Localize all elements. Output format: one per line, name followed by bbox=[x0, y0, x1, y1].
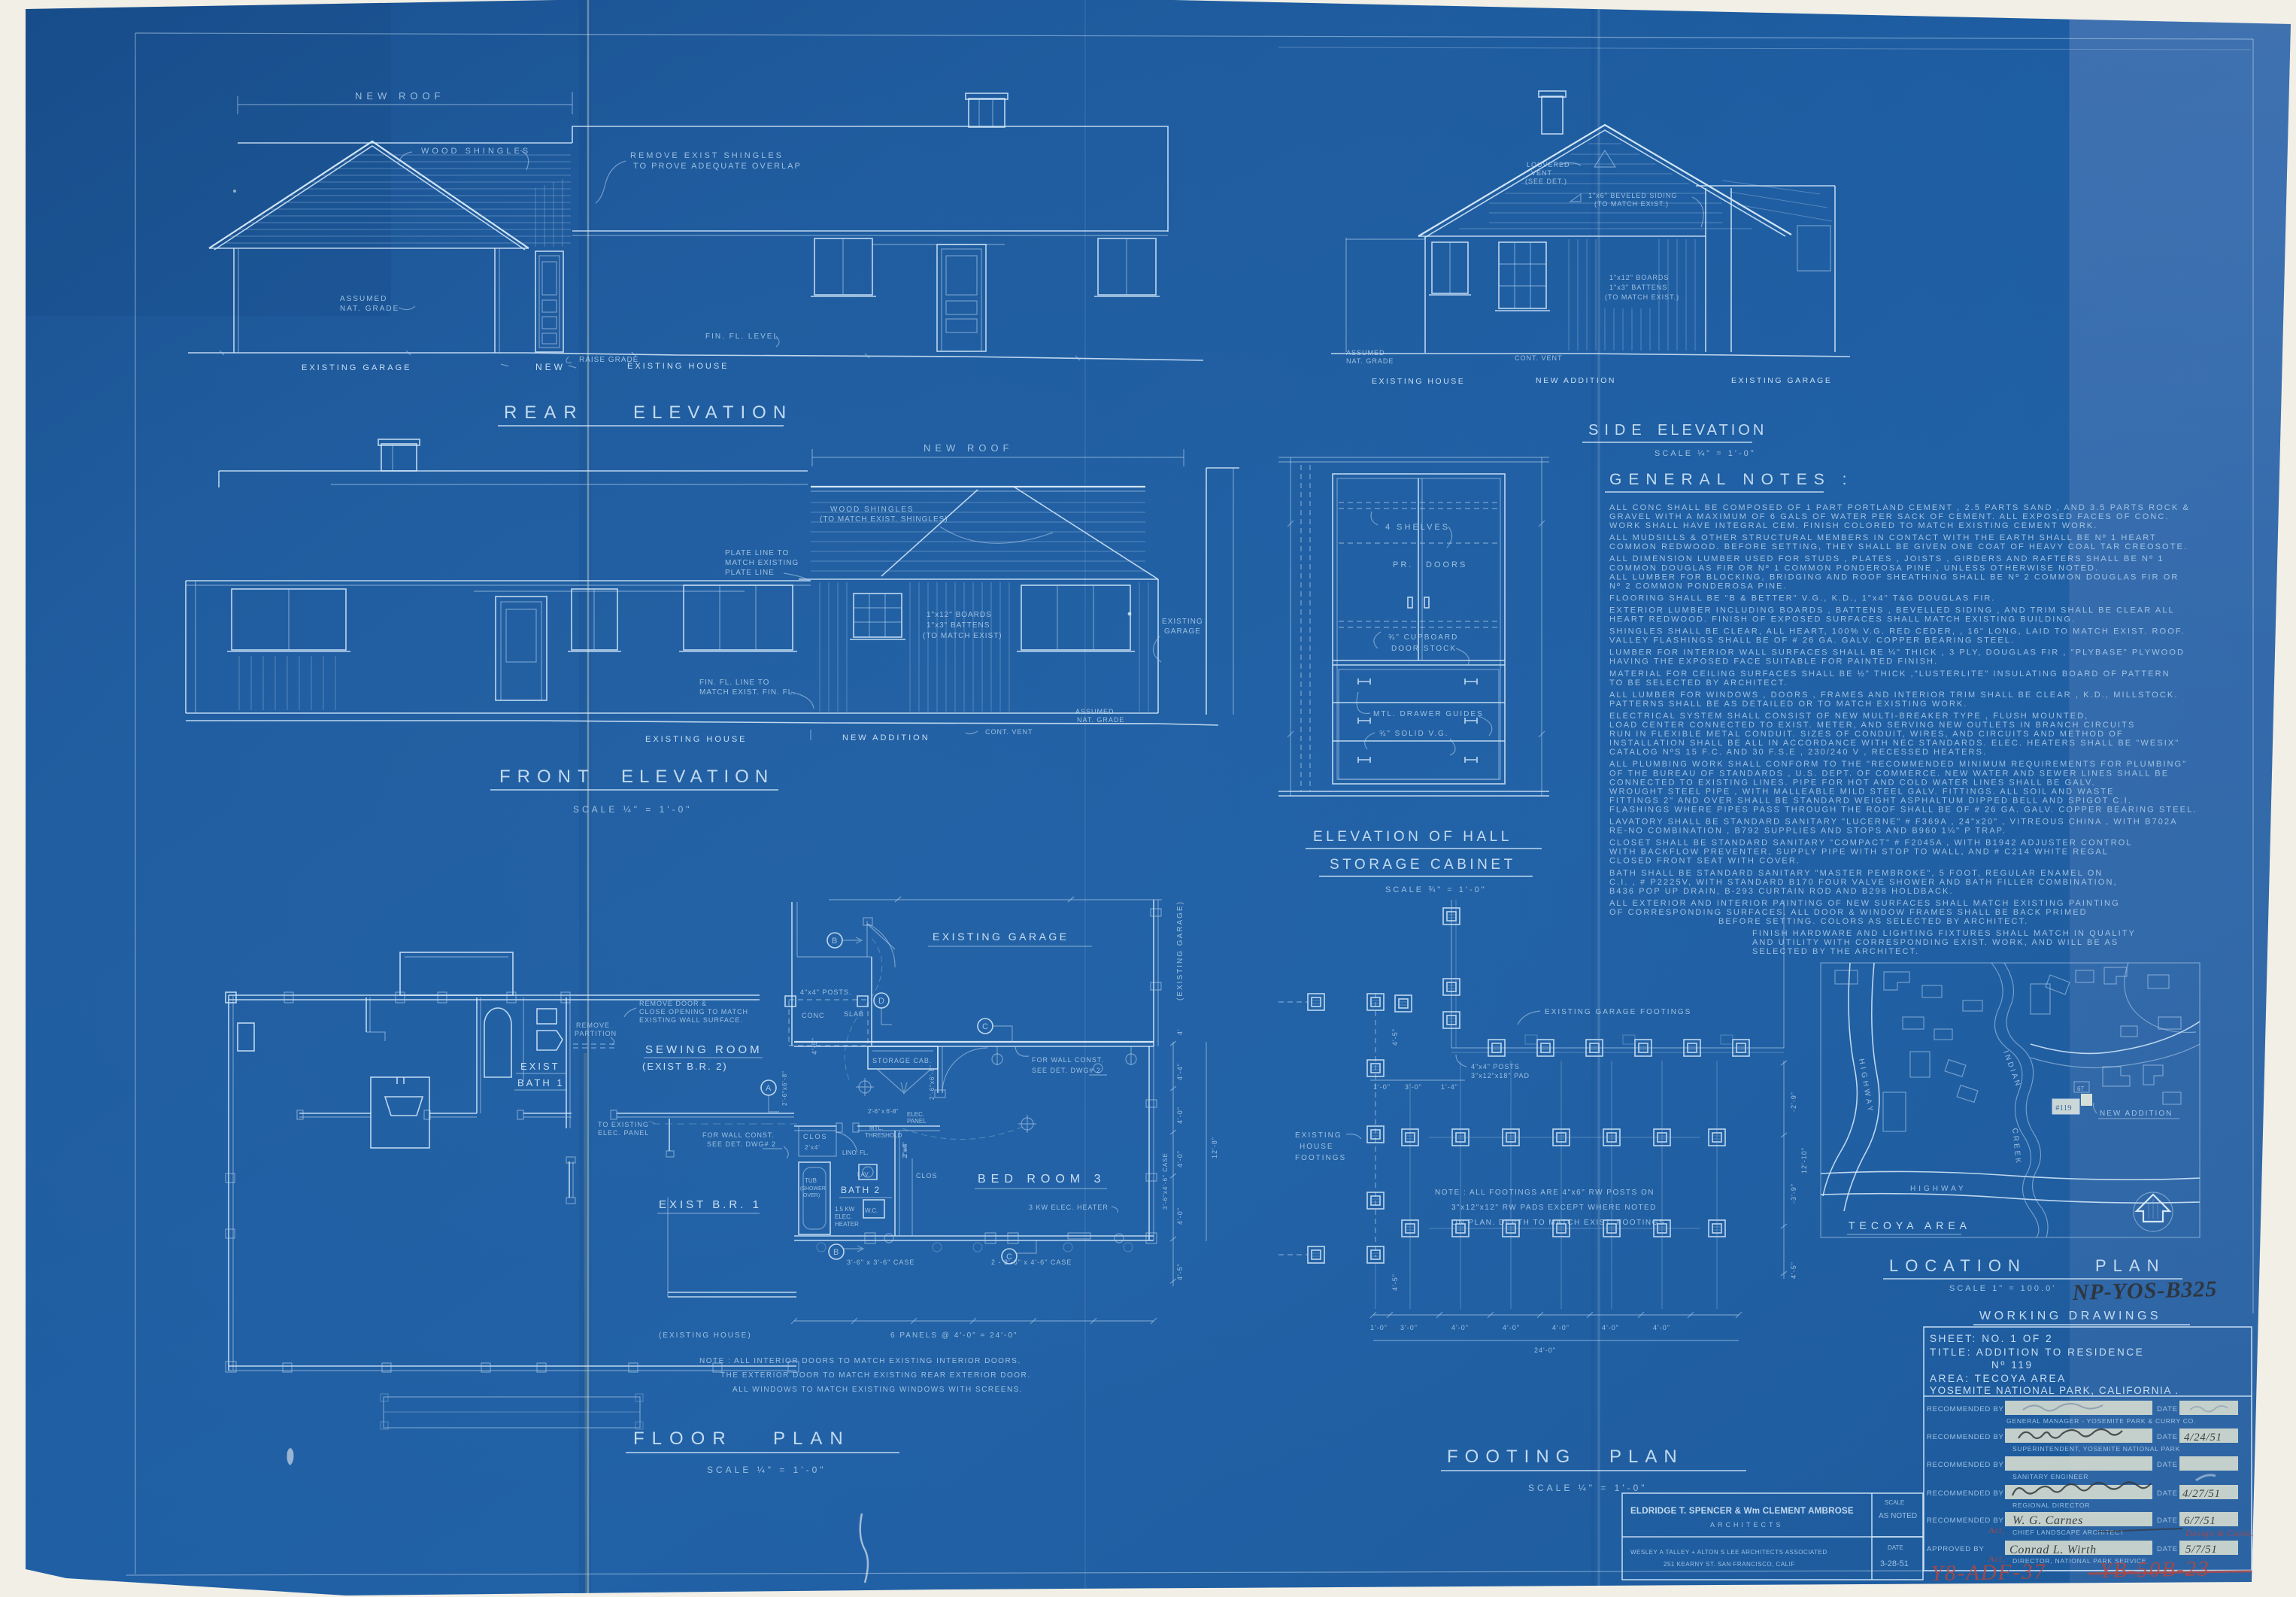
svg-text:PLAN: PLAN bbox=[2095, 1256, 2165, 1275]
svg-text:YOSEMITE NATIONAL PARK, CALI: YOSEMITE NATIONAL PARK, CALIFORNIA . bbox=[1930, 1385, 2179, 1396]
svg-text:EXTERIOR LUMBER INCLUDING BOAR: EXTERIOR LUMBER INCLUDING BOARDS , BATTE… bbox=[1609, 606, 2175, 615]
svg-text:4'-0": 4'-0" bbox=[1503, 1324, 1520, 1331]
svg-text:FOR WALL CONST.: FOR WALL CONST. bbox=[1032, 1056, 1104, 1064]
svg-text:3'-6"x4'-6" CASE: 3'-6"x4'-6" CASE bbox=[1162, 1152, 1169, 1210]
svg-text:ASSUMED: ASSUMED bbox=[340, 295, 387, 303]
svg-text:4'-0": 4'-0" bbox=[1602, 1324, 1619, 1331]
svg-text:SHEET: NO. 1 OF 2: SHEET: NO. 1 OF 2 bbox=[1930, 1333, 2053, 1344]
svg-text:CLOSED FRONT SEAT WITH COVER.: CLOSED FRONT SEAT WITH COVER. bbox=[1609, 857, 1800, 866]
svg-text:ALL CONC SHALL BE COMPOSED OF: ALL CONC SHALL BE COMPOSED OF 1 PART POR… bbox=[1609, 503, 2190, 512]
svg-text:SCALE ¼" = 1'-0": SCALE ¼" = 1'-0" bbox=[1655, 449, 1756, 458]
svg-text:SANITARY ENGINEER: SANITARY ENGINEER bbox=[2012, 1473, 2088, 1480]
svg-text:Act,: Act, bbox=[1988, 1525, 2005, 1535]
svg-text:THE EXTERIOR DOOR TO MATCH: THE EXTERIOR DOOR TO MATCH EXISTING REAR… bbox=[720, 1371, 1031, 1380]
svg-text:MATCH EXIST. FIN. FL.: MATCH EXIST. FIN. FL. bbox=[699, 688, 796, 697]
svg-text:BATH 2: BATH 2 bbox=[841, 1185, 881, 1195]
svg-text:EXISTING: EXISTING bbox=[1162, 618, 1203, 626]
svg-text:OVER): OVER) bbox=[803, 1193, 820, 1198]
svg-text:DATE: DATE bbox=[2157, 1545, 2178, 1553]
svg-text:ELEC.: ELEC. bbox=[835, 1213, 852, 1220]
svg-text:-2'-9": -2'-9" bbox=[1790, 1091, 1797, 1112]
svg-text:3'-0": 3'-0" bbox=[1400, 1324, 1418, 1331]
svg-text:BATH SHALL BE STANDARD SANITAR: BATH SHALL BE STANDARD SANITARY "MASTER … bbox=[1609, 869, 2103, 878]
svg-text:REMOVE DOOR &: REMOVE DOOR & bbox=[639, 1000, 707, 1007]
svg-text:DATE: DATE bbox=[2157, 1405, 2178, 1413]
svg-text:PLATE LINE TO: PLATE LINE TO bbox=[725, 549, 789, 557]
svg-text:HEATER: HEATER bbox=[835, 1221, 859, 1228]
svg-text:APPROVED BY: APPROVED BY bbox=[1927, 1545, 1984, 1553]
svg-text:RECOMMENDED BY: RECOMMENDED BY bbox=[1927, 1433, 2004, 1441]
svg-text:AREA: TECOYA AREA: AREA: TECOYA AREA bbox=[1930, 1373, 2067, 1384]
svg-text:LOCATION: LOCATION bbox=[1889, 1256, 2027, 1275]
svg-text:1"x12" BOARDS: 1"x12" BOARDS bbox=[927, 611, 992, 619]
svg-text:STORAGE CABINET: STORAGE CABINET bbox=[1330, 857, 1516, 873]
svg-text:INSTALLATION SHALL BE ALL IN A: INSTALLATION SHALL BE ALL IN ACCORDANCE … bbox=[1609, 739, 2179, 748]
svg-text:3"x12"x18" PAD: 3"x12"x18" PAD bbox=[1471, 1072, 1530, 1079]
svg-text:2 - 3'-6" x 4'-6" CASE: 2 - 3'-6" x 4'-6" CASE bbox=[991, 1258, 1072, 1266]
svg-text:RECOMMENDED BY: RECOMMENDED BY bbox=[1927, 1517, 2004, 1525]
svg-text:MTL. DRAWER GUIDES: MTL. DRAWER GUIDES bbox=[1373, 710, 1484, 718]
svg-text:4'-5": 4'-5" bbox=[1391, 1028, 1399, 1046]
svg-text:ASSUMED: ASSUMED bbox=[1346, 349, 1385, 357]
svg-text:RUN IN FLEXIBLE METAL CONDUIT.: RUN IN FLEXIBLE METAL CONDUIT. SIZES OF … bbox=[1609, 730, 2124, 739]
svg-text:4/24/51: 4/24/51 bbox=[2184, 1432, 2222, 1444]
svg-text:NEW ROOF: NEW ROOF bbox=[355, 90, 445, 102]
svg-text:YB-50B-23: YB-50B-23 bbox=[2100, 1556, 2210, 1583]
svg-text:DATE: DATE bbox=[2157, 1489, 2178, 1498]
svg-text:GRAVEL WITH A MAXIMUM OF 6 GAL: GRAVEL WITH A MAXIMUM OF 6 GALS OF WATER… bbox=[1609, 512, 2170, 521]
svg-text:CONC: CONC bbox=[802, 1012, 825, 1019]
svg-text:CONT. VENT: CONT. VENT bbox=[1515, 354, 1563, 362]
svg-text:ELECTRICAL SYSTEM SHALL CONSIS: ELECTRICAL SYSTEM SHALL CONSIST OF NEW M… bbox=[1609, 712, 2088, 721]
svg-text:NAT. GRADE: NAT. GRADE bbox=[340, 305, 399, 313]
svg-text:LINO. FL.: LINO. FL. bbox=[842, 1149, 869, 1156]
svg-text:CLOS: CLOS bbox=[916, 1172, 938, 1180]
svg-text:EXISTING GARAGE FOOTINGS: EXISTING GARAGE FOOTINGS bbox=[1545, 1008, 1691, 1016]
svg-text:FOR WALL CONST.: FOR WALL CONST. bbox=[702, 1131, 775, 1139]
svg-text:1"x3" BATTENS: 1"x3" BATTENS bbox=[927, 621, 990, 630]
svg-text:TUB: TUB bbox=[805, 1177, 817, 1184]
svg-text:¾" SOLID V.G.: ¾" SOLID V.G. bbox=[1379, 730, 1449, 738]
svg-text:PR.: PR. bbox=[1393, 560, 1413, 569]
svg-text:CHIEF LANDSCAPE ARCHITECT: CHIEF LANDSCAPE ARCHITECT bbox=[2012, 1529, 2125, 1536]
svg-text:Design & Const.: Design & Const. bbox=[2185, 1528, 2254, 1538]
svg-text:ALL MUDSILLS & OTHER STRUCTURA: ALL MUDSILLS & OTHER STRUCTURAL MEMBERS … bbox=[1609, 533, 2157, 542]
svg-text:(SHOWER: (SHOWER bbox=[800, 1186, 826, 1192]
svg-text:SHINGLES SHALL BE CLEAR, ALL H: SHINGLES SHALL BE CLEAR, ALL HEART, 100%… bbox=[1609, 627, 2185, 636]
svg-text:¾" CUPBOARD: ¾" CUPBOARD bbox=[1388, 633, 1458, 642]
svg-text:CONT. VENT: CONT. VENT bbox=[985, 728, 1033, 736]
svg-text:SELECTED BY THE ARCHITECT.: SELECTED BY THE ARCHITECT. bbox=[1752, 947, 1919, 956]
svg-text:EXISTING HOUSE: EXISTING HOUSE bbox=[627, 362, 729, 371]
svg-text:LOUVERED: LOUVERED bbox=[1527, 161, 1570, 169]
svg-text:ON PLAN. DEPTH TO MATCH EX: ON PLAN. DEPTH TO MATCH EXIST. FOOTINGS. bbox=[1451, 1219, 1668, 1227]
svg-text:4'-0": 4'-0" bbox=[1451, 1324, 1469, 1331]
svg-text:W.C.: W.C. bbox=[865, 1207, 878, 1214]
svg-text:FOOTING: FOOTING bbox=[1447, 1447, 1576, 1467]
svg-text:(EXISTING HOUSE): (EXISTING HOUSE) bbox=[659, 1331, 752, 1340]
svg-text:EXISTING GARAGE: EXISTING GARAGE bbox=[1731, 376, 1832, 385]
svg-text:PLATE LINE: PLATE LINE bbox=[725, 569, 775, 577]
svg-text:DATE: DATE bbox=[2157, 1517, 2178, 1525]
svg-text:CLOS: CLOS bbox=[803, 1133, 828, 1140]
svg-text:NAT. GRADE: NAT. GRADE bbox=[1077, 716, 1124, 724]
svg-text:3-28-51: 3-28-51 bbox=[1880, 1559, 1909, 1568]
svg-text:ELEVATION: ELEVATION bbox=[633, 402, 793, 423]
svg-text:1"x3" BATTENS: 1"x3" BATTENS bbox=[1609, 284, 1667, 291]
svg-text:ALL DIMENSION LUMBER USED FOR: ALL DIMENSION LUMBER USED FOR STUDS , PL… bbox=[1609, 554, 2164, 563]
svg-text:BATH 1: BATH 1 bbox=[517, 1077, 565, 1088]
svg-text:ALL PLUMBING WORK SHALL CONFOR: ALL PLUMBING WORK SHALL CONFORM TO THE "… bbox=[1609, 760, 2187, 769]
svg-text:RECOMMENDED BY: RECOMMENDED BY bbox=[1927, 1489, 2004, 1498]
svg-text:DOORS: DOORS bbox=[1426, 560, 1467, 569]
svg-text:WESLEY A TALLEY + A: WESLEY A TALLEY + ALTON S LEE ARCHITECTS… bbox=[1630, 1549, 1827, 1556]
svg-text:NP-YOS-B325: NP-YOS-B325 bbox=[2071, 1277, 2217, 1305]
svg-text:B: B bbox=[832, 937, 837, 946]
svg-text:2'x4': 2'x4' bbox=[805, 1144, 820, 1151]
svg-text:SIDE: SIDE bbox=[1588, 422, 1648, 439]
svg-text:VALLEY FLASHINGS SHALL BE OF #: VALLEY FLASHINGS SHALL BE OF # 26 GA. GA… bbox=[1609, 636, 2015, 645]
svg-text:NEW ADDITION: NEW ADDITION bbox=[2100, 1110, 2173, 1118]
svg-text:12'-10": 12'-10" bbox=[1800, 1147, 1808, 1173]
svg-text:1.5 KW: 1.5 KW bbox=[835, 1206, 855, 1213]
svg-text:2'x4': 2'x4' bbox=[902, 1143, 908, 1158]
svg-text:C: C bbox=[982, 1022, 988, 1031]
svg-text:EXIST B.R. 1: EXIST B.R. 1 bbox=[659, 1198, 762, 1211]
svg-text:1"x12" BOARDS: 1"x12" BOARDS bbox=[1609, 274, 1669, 281]
svg-text:SCALE ¼" = 1'-0": SCALE ¼" = 1'-0" bbox=[573, 804, 693, 815]
svg-text:(TO MATCH EXIST. SHINGLES): (TO MATCH EXIST. SHINGLES) bbox=[820, 515, 948, 524]
svg-text:THRESHOLD: THRESHOLD bbox=[865, 1132, 902, 1139]
svg-text:1'-4": 1'-4" bbox=[1441, 1083, 1458, 1091]
svg-text:4'-5": 4'-5" bbox=[1790, 1262, 1797, 1279]
svg-text:REGIONAL DIRECTOR: REGIONAL DIRECTOR bbox=[2012, 1501, 2090, 1509]
svg-text:4'-4": 4'-4" bbox=[1176, 1063, 1184, 1080]
svg-text:(TO MATCH EXIST.): (TO MATCH EXIST.) bbox=[1594, 200, 1669, 208]
svg-text:NOTE : ALL INTERIOR DOORS: NOTE : ALL INTERIOR DOORS TO MATCH EXIST… bbox=[699, 1357, 1021, 1365]
svg-text:3'-0": 3'-0" bbox=[1405, 1083, 1422, 1091]
svg-text:LOAD CENTER CONNECTED TO EXIST: LOAD CENTER CONNECTED TO EXIST. METER, A… bbox=[1609, 721, 2135, 730]
svg-text:REMOVE: REMOVE bbox=[576, 1022, 610, 1029]
svg-text:DATE: DATE bbox=[1888, 1544, 1903, 1551]
svg-text:LAV: LAV bbox=[857, 1171, 869, 1178]
svg-text:FIN. FL. LEVEL: FIN. FL. LEVEL bbox=[705, 332, 779, 341]
svg-text:(SEE DET.): (SEE DET.) bbox=[1525, 178, 1567, 185]
svg-text:EXISTING GARAGE: EXISTING GARAGE bbox=[302, 363, 411, 372]
svg-text:Nº 119: Nº 119 bbox=[1991, 1359, 2034, 1371]
svg-text:RECOMMENDED BY: RECOMMENDED BY bbox=[1927, 1405, 2004, 1413]
svg-text:4'-0": 4'-0" bbox=[1176, 1207, 1184, 1225]
svg-text:FLOOR: FLOOR bbox=[633, 1428, 733, 1449]
svg-text:HIGHWAY: HIGHWAY bbox=[1910, 1185, 1967, 1193]
svg-text:(EXIST B.R. 2): (EXIST B.R. 2) bbox=[642, 1061, 728, 1072]
svg-text:COMMON DOUGLAS FIR OR Nº 1 COM: COMMON DOUGLAS FIR OR Nº 1 COMMON PONDER… bbox=[1609, 563, 2099, 572]
svg-text:REMOVE EXIST SHINGLES: REMOVE EXIST SHINGLES bbox=[630, 151, 784, 160]
svg-text:TO PROVE ADEQUATE OVERLAP: TO PROVE ADEQUATE OVERLAP bbox=[633, 162, 802, 171]
svg-text:GARAGE: GARAGE bbox=[1164, 627, 1201, 636]
svg-text:DATE: DATE bbox=[2157, 1433, 2178, 1441]
svg-text:TECOYA AREA: TECOYA AREA bbox=[1849, 1219, 1971, 1231]
svg-text:ELEVATION: ELEVATION bbox=[1658, 422, 1767, 439]
svg-text:HAVING THE EXPOSED FACE SUITAB: HAVING THE EXPOSED FACE SUITABLE FOR PAI… bbox=[1609, 657, 1938, 666]
svg-text:CONNECTED TO EXISTING LINES. P: CONNECTED TO EXISTING LINES. PIPE FOR HO… bbox=[1609, 778, 2096, 787]
svg-text:4'-5": 4'-5" bbox=[1176, 1263, 1184, 1280]
svg-text:FLOORING SHALL BE "B & BETTER": FLOORING SHALL BE "B & BETTER" V.G., K.D… bbox=[1609, 594, 1996, 603]
svg-text:HOUSE: HOUSE bbox=[1300, 1143, 1334, 1151]
svg-text:FIN. FL. LINE TO: FIN. FL. LINE TO bbox=[699, 679, 769, 687]
svg-text:W. G. Carnes: W. G. Carnes bbox=[2012, 1514, 2083, 1527]
svg-text:4'-0": 4'-0" bbox=[1552, 1324, 1570, 1331]
svg-text:1'-0": 1'-0" bbox=[1370, 1324, 1388, 1331]
svg-text:PLAN: PLAN bbox=[773, 1428, 851, 1449]
svg-text:4"x4" POSTS.: 4"x4" POSTS. bbox=[800, 988, 851, 996]
svg-text:VENT: VENT bbox=[1531, 169, 1552, 177]
svg-text:OF CORRESPONDING SURFACES. ALL: OF CORRESPONDING SURFACES. ALL DOOR & WI… bbox=[1609, 908, 2088, 917]
svg-text:D: D bbox=[878, 997, 884, 1006]
svg-text:4'-0": 4'-0" bbox=[1653, 1324, 1670, 1331]
svg-text:ALL LUMBER FOR WINDOWS , DOORS: ALL LUMBER FOR WINDOWS , DOORS , FRAMES … bbox=[1609, 691, 2178, 700]
svg-text:251 KEARNY ST. SAN FRANCIS: 251 KEARNY ST. SAN FRANCISCO, CALIF bbox=[1664, 1561, 1795, 1568]
svg-text:Conrad L. Wirth: Conrad L. Wirth bbox=[2009, 1544, 2097, 1556]
svg-text:Y8-ADF-37: Y8-ADF-37 bbox=[1931, 1559, 2047, 1586]
svg-text:SCALE ¼" = 1'-0": SCALE ¼" = 1'-0" bbox=[707, 1465, 826, 1475]
svg-text:67: 67 bbox=[2077, 1085, 2084, 1092]
svg-text:ELEVATION: ELEVATION bbox=[621, 767, 774, 787]
svg-text:GENERAL MANAGER - YOSEMITE P: GENERAL MANAGER - YOSEMITE PARK & CURRY … bbox=[2006, 1417, 2196, 1425]
svg-text:4"x4" POSTS: 4"x4" POSTS bbox=[1471, 1063, 1520, 1070]
svg-text:TO BE SELECTED BY ARCHITECT.: TO BE SELECTED BY ARCHITECT. bbox=[1609, 679, 1788, 688]
svg-text:SCALE 1" = 100.0': SCALE 1" = 100.0' bbox=[1949, 1284, 2056, 1293]
svg-text:4': 4' bbox=[1176, 1028, 1184, 1035]
svg-text:NAT. GRADE: NAT. GRADE bbox=[1346, 357, 1394, 365]
svg-text:1"x6" BEVELED SIDING: 1"x6" BEVELED SIDING bbox=[1588, 192, 1677, 199]
svg-text:RECOMMENDED BY: RECOMMENDED BY bbox=[1927, 1461, 2004, 1469]
svg-text:3 KW ELEC. HEATER: 3 KW ELEC. HEATER bbox=[1029, 1204, 1109, 1211]
svg-text:4 SHELVES: 4 SHELVES bbox=[1385, 523, 1450, 532]
svg-text:WORK SHALL HAVE INTEGRAL CEM.: WORK SHALL HAVE INTEGRAL CEM. FINISH COL… bbox=[1609, 521, 2098, 530]
svg-text:C.I. , # P2225V, WITH STANDARD: C.I. , # P2225V, WITH STANDARD B170 FOUR… bbox=[1609, 878, 2118, 887]
svg-text:5/7/51: 5/7/51 bbox=[2185, 1544, 2218, 1556]
svg-text:COMMON REDWOOD. BEFORE SETTING: COMMON REDWOOD. BEFORE SETTING, THEY SHA… bbox=[1609, 542, 2188, 551]
svg-text:EXISTING WALL SURFACE.: EXISTING WALL SURFACE. bbox=[639, 1016, 743, 1024]
svg-text:WORKING DRAWINGS: WORKING DRAWINGS bbox=[1979, 1310, 2161, 1322]
svg-text:2'-6"x6'-8": 2'-6"x6'-8" bbox=[929, 1064, 936, 1100]
svg-text:BED ROOM 3: BED ROOM 3 bbox=[978, 1173, 1106, 1186]
svg-text:(EXISTING GARAGE): (EXISTING GARAGE) bbox=[1176, 900, 1184, 1000]
svg-text:6 PANELS @ 4'-0" = 24': 6 PANELS @ 4'-0" = 24'-0" bbox=[890, 1331, 1018, 1340]
svg-text:NEW: NEW bbox=[535, 362, 566, 372]
svg-text:HEART REDWOOD. FINISH OF EXPOS: HEART REDWOOD. FINISH OF EXPOSED SURFACE… bbox=[1609, 615, 2076, 624]
svg-text:FITTINGS 2" AND OVER SHALL BE: FITTINGS 2" AND OVER SHALL BE STANDARD W… bbox=[1609, 796, 2132, 805]
svg-text:NOTE : ALL FOOTINGS ARE 4"x: NOTE : ALL FOOTINGS ARE 4"x6" RW POSTS O… bbox=[1435, 1189, 1655, 1197]
svg-text:GENERAL NOTES :: GENERAL NOTES : bbox=[1609, 471, 1853, 488]
svg-text:12'-8": 12'-8" bbox=[1211, 1137, 1218, 1158]
svg-text:4/27/51: 4/27/51 bbox=[2182, 1488, 2221, 1500]
svg-text:FOOTINGS: FOOTINGS bbox=[1295, 1154, 1346, 1162]
svg-text:NEW ROOF: NEW ROOF bbox=[924, 442, 1014, 454]
svg-text:EXISTING HOUSE: EXISTING HOUSE bbox=[1372, 377, 1465, 386]
svg-text:MATERIAL FOR CEILING SURFACES: MATERIAL FOR CEILING SURFACES SHALL BE ½… bbox=[1609, 669, 2170, 679]
svg-text:1'-0": 1'-0" bbox=[1373, 1083, 1391, 1091]
svg-text:3'-6" x 3'-6" CASE: 3'-6" x 3'-6" CASE bbox=[847, 1258, 914, 1266]
svg-text:ASSUMED: ASSUMED bbox=[1075, 708, 1115, 715]
svg-text:-3'-9": -3'-9" bbox=[1790, 1183, 1797, 1204]
svg-text:OF THE BUREAU OF STANDARDS , U: OF THE BUREAU OF STANDARDS , U.S. DEPT. … bbox=[1609, 769, 2169, 778]
svg-text:NEW ADDITION: NEW ADDITION bbox=[1536, 376, 1616, 385]
svg-text:EXISTING: EXISTING bbox=[1295, 1131, 1342, 1140]
svg-text:ALL LUMBER FOR BLOCKING, BRIDG: ALL LUMBER FOR BLOCKING, BRIDGING AND RO… bbox=[1609, 572, 2179, 581]
svg-text:CLOSET SHALL BE STANDARD SANIT: CLOSET SHALL BE STANDARD SANITARY "COMPA… bbox=[1609, 839, 2133, 848]
svg-text:WOOD SHINGLES: WOOD SHINGLES bbox=[421, 147, 531, 156]
svg-text:SCALE: SCALE bbox=[1885, 1499, 1904, 1506]
svg-text:4'-0": 4'-0" bbox=[1176, 1107, 1184, 1124]
svg-text:(TO MATCH EXIST): (TO MATCH EXIST) bbox=[923, 632, 1002, 640]
svg-text:ELDRIDGE T. SPENCER & Wm CLEME: ELDRIDGE T. SPENCER & Wm CLEMENT AMBROSE bbox=[1630, 1506, 1854, 1516]
svg-text:CLOSE OPENING TO MATCH: CLOSE OPENING TO MATCH bbox=[639, 1008, 748, 1016]
svg-text:FRONT: FRONT bbox=[499, 767, 596, 787]
svg-text:#119: #119 bbox=[2055, 1104, 2072, 1113]
svg-text:MATCH EXISTING: MATCH EXISTING bbox=[725, 559, 799, 567]
svg-text:PATTERNS SHALL BE AS DETAILED: PATTERNS SHALL BE AS DETAILED OR TO MATC… bbox=[1609, 700, 1968, 709]
svg-text:REAR: REAR bbox=[504, 402, 584, 423]
svg-text:PARTITION: PARTITION bbox=[575, 1030, 617, 1037]
svg-text:EXISTING HOUSE: EXISTING HOUSE bbox=[645, 735, 748, 744]
svg-text:SCALE ¾" = 1'-0": SCALE ¾" = 1'-0" bbox=[1385, 885, 1487, 894]
svg-text:24'-0": 24'-0" bbox=[1534, 1347, 1556, 1354]
svg-text:ARCHITECTS: ARCHITECTS bbox=[1710, 1521, 1784, 1529]
svg-text:ALL EXTERIOR AND INTERIOR PAIN: ALL EXTERIOR AND INTERIOR PAINTING OF NE… bbox=[1609, 899, 2120, 908]
svg-text:MTL.: MTL. bbox=[869, 1125, 883, 1131]
svg-text:STORAGE CAB.: STORAGE CAB. bbox=[872, 1057, 932, 1064]
svg-text:BEFORE SETTING. COLORS AS SELE: BEFORE SETTING. COLORS AS SELECTED BY AR… bbox=[1718, 917, 2028, 926]
svg-text:PANEL: PANEL bbox=[907, 1118, 927, 1125]
svg-text:2'-6" x 6'-8": 2'-6" x 6'-8" bbox=[868, 1108, 898, 1115]
svg-text:EXIST: EXIST bbox=[520, 1061, 560, 1072]
svg-text:TITLE: ADDITION TO RESIDENC: TITLE: ADDITION TO RESIDENCE bbox=[1930, 1347, 2144, 1358]
svg-text:SEWING ROOM: SEWING ROOM bbox=[645, 1043, 763, 1056]
svg-text:NEW ADDITION: NEW ADDITION bbox=[842, 733, 930, 742]
svg-text:FLASHINGS WHERE PIPES PASS THR: FLASHINGS WHERE PIPES PASS THROUGH THE R… bbox=[1609, 806, 2197, 815]
svg-text:ELEVATION OF HALL: ELEVATION OF HALL bbox=[1313, 829, 1512, 845]
svg-text:B436 POP UP DRAIN, B-293 CURTA: B436 POP UP DRAIN, B-293 CURTAIN ROD AND… bbox=[1609, 887, 1954, 896]
svg-text:AND UTILITY WITH CORRESPONDING: AND UTILITY WITH CORRESPONDING EXIST. WO… bbox=[1752, 938, 2119, 947]
svg-text:SUPERINTENDENT, YOSEMITE NAT: SUPERINTENDENT, YOSEMITE NATIONAL PARK bbox=[2012, 1445, 2180, 1453]
svg-text:ELEC.: ELEC. bbox=[907, 1111, 924, 1118]
svg-text:ALL WINDOWS TO MATCH EXIST: ALL WINDOWS TO MATCH EXISTING WINDOWS WI… bbox=[732, 1386, 1023, 1394]
svg-text:WOOD SHINGLES: WOOD SHINGLES bbox=[830, 506, 914, 514]
svg-text:CATALOG NºS 15 F.C. AND 30 F.S: CATALOG NºS 15 F.C. AND 30 F.S.E , 230/2… bbox=[1609, 748, 1987, 757]
svg-text:FINISH HARDWARE AND LIGHTING F: FINISH HARDWARE AND LIGHTING FIXTURES SH… bbox=[1752, 929, 2136, 938]
svg-text:AS NOTED: AS NOTED bbox=[1879, 1512, 1917, 1520]
svg-text:Nº 2 COMMON PONDEROSA PINE.: Nº 2 COMMON PONDEROSA PINE. bbox=[1609, 581, 1788, 591]
svg-text:WROUGHT STEEL PIPE , WITH MALL: WROUGHT STEEL PIPE , WITH MALLEABLE MILD… bbox=[1609, 787, 2115, 796]
svg-text:WITH BACKFLOW PREVENTER, SUPPL: WITH BACKFLOW PREVENTER, SUPPLY PIPE WIT… bbox=[1609, 848, 2109, 857]
svg-text:PLAN: PLAN bbox=[1609, 1447, 1684, 1467]
svg-text:LAVATORY SHALL BE STANDARD SAN: LAVATORY SHALL BE STANDARD SANITARY "LUC… bbox=[1609, 818, 2178, 827]
svg-text:TO EXISTING: TO EXISTING bbox=[598, 1121, 649, 1128]
svg-text:(TO MATCH EXIST.): (TO MATCH EXIST.) bbox=[1605, 293, 1679, 301]
svg-text:LUMBER FOR INTERIOR WALL SURFA: LUMBER FOR INTERIOR WALL SURFACES SHALL … bbox=[1609, 648, 2185, 657]
svg-text:B: B bbox=[833, 1248, 839, 1257]
svg-text:DATE: DATE bbox=[2157, 1461, 2178, 1469]
svg-text:ELEC. PANEL: ELEC. PANEL bbox=[598, 1129, 649, 1137]
svg-text:RE-NO COMBINATION , B792 SUPPL: RE-NO COMBINATION , B792 SUPPLIES AND ST… bbox=[1609, 827, 2006, 836]
svg-text:SEE DET. DWG# 2: SEE DET. DWG# 2 bbox=[707, 1140, 776, 1148]
svg-text:3"x12"x12" RW PADS EXCEPT W: 3"x12"x12" RW PADS EXCEPT WHERE NOTED bbox=[1451, 1204, 1657, 1212]
svg-text:4'-0": 4'-0" bbox=[1176, 1150, 1184, 1167]
svg-text:2'-6"x6'-8": 2'-6"x6'-8" bbox=[781, 1070, 788, 1106]
svg-text:SCALE ¼" = 1'-0": SCALE ¼" = 1'-0" bbox=[1528, 1483, 1648, 1493]
svg-text:SEE DET. DWG# 2: SEE DET. DWG# 2 bbox=[1032, 1067, 1101, 1074]
svg-text:4'-5": 4'-5" bbox=[1391, 1274, 1399, 1291]
svg-text:A: A bbox=[766, 1084, 772, 1093]
svg-text:EXISTING GARAGE: EXISTING GARAGE bbox=[933, 931, 1069, 943]
svg-text:DOOR STOCK: DOOR STOCK bbox=[1391, 645, 1457, 653]
svg-text:6/7/51: 6/7/51 bbox=[2184, 1515, 2216, 1527]
